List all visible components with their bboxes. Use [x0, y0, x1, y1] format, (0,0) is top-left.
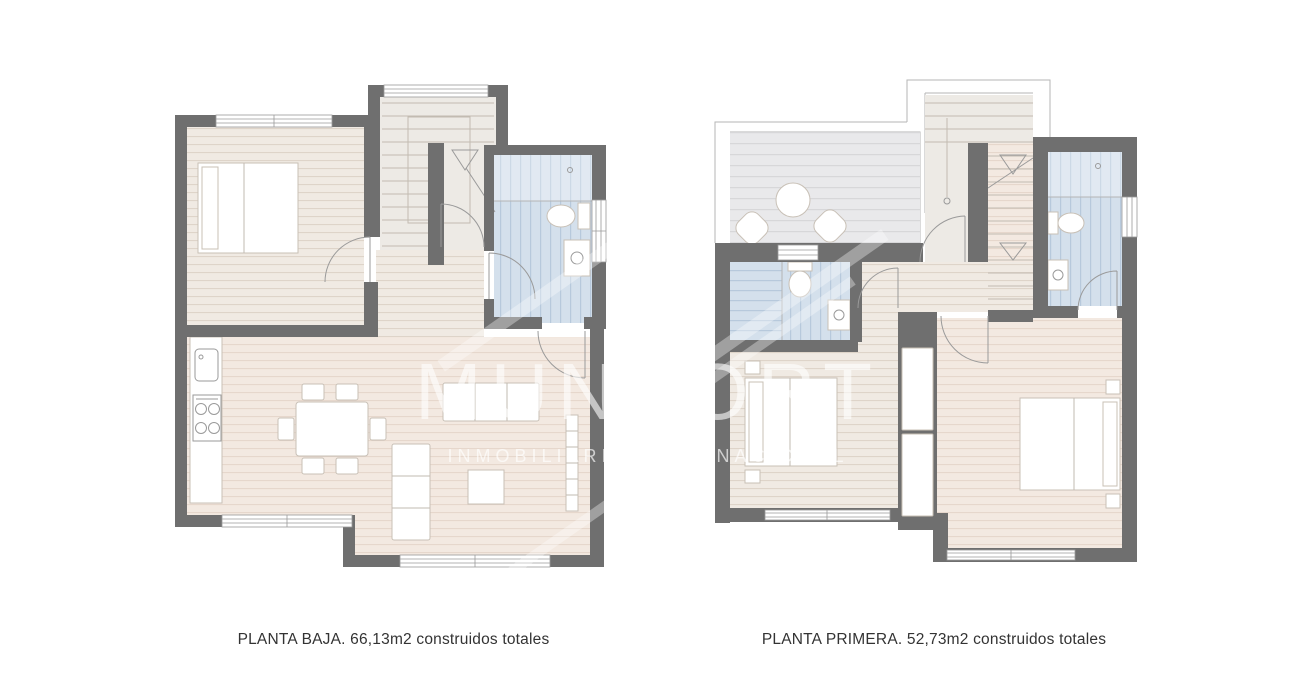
pp-nightstand	[745, 361, 760, 374]
pp-bedroom1-window	[765, 510, 890, 520]
pb-sofa-2	[392, 444, 430, 540]
pp-nightstand	[745, 470, 760, 483]
pp-small-bath-window	[778, 245, 818, 260]
pb-chair	[336, 458, 358, 474]
pp-toilet-tank	[1048, 212, 1058, 234]
pb-bedroom	[198, 163, 298, 253]
pb-chair	[302, 384, 324, 400]
pb-chair	[370, 418, 386, 440]
floor-plan-sheet: MUNPORT INMOBILIARIA INTERNACIONAL PLANT…	[0, 0, 1290, 698]
pp-small-sink	[828, 300, 850, 330]
pb-bed-pillow	[202, 167, 218, 249]
pp-toilet	[1058, 213, 1084, 233]
pp-shower-zone	[1048, 152, 1122, 197]
pb-sofa	[443, 383, 539, 421]
caption-planta-primera: PLANTA PRIMERA. 52,73m2 construidos tota…	[715, 631, 1153, 649]
pp-bedroom2	[1020, 380, 1120, 508]
pp-nightstand	[1106, 494, 1120, 508]
pb-coffee-table	[468, 470, 504, 504]
pp-hall-floor	[850, 262, 1033, 312]
floor-plans-canvas	[0, 0, 1290, 620]
pp-small-toilet-tank	[788, 262, 812, 271]
pp-stair-spine-wall	[968, 143, 988, 262]
pb-toilet	[547, 205, 575, 227]
pp-terrace-table	[776, 183, 810, 217]
pp-sink-counter	[1048, 260, 1068, 290]
caption-planta-baja: PLANTA BAJA. 66,13m2 construidos totales	[175, 631, 612, 649]
pp-bathroom-window	[1122, 197, 1137, 237]
pp-hall-corridor-floor	[858, 312, 898, 350]
pb-chair	[302, 458, 324, 474]
pp-nightstand	[1106, 380, 1120, 394]
pb-chair	[336, 384, 358, 400]
pb-shower-zone	[494, 155, 592, 201]
pp-wardrobe-door	[902, 348, 933, 430]
pp-bed1-pillow	[749, 382, 763, 462]
pb-toilet-tank	[578, 203, 590, 229]
pb-stair-window	[384, 85, 488, 97]
pp-bedroom2-window	[947, 550, 1075, 560]
pp-bedroom1	[745, 361, 837, 483]
pp-bed2-pillow	[1103, 402, 1117, 486]
pb-kitchen-window	[222, 515, 352, 527]
pb-dining-table	[296, 402, 368, 456]
pb-chair	[278, 418, 294, 440]
pb-bedroom-window	[216, 115, 332, 127]
pp-wardrobe-door	[902, 434, 933, 516]
plan-planta-primera	[715, 80, 1137, 562]
plan-planta-baja	[175, 85, 606, 567]
